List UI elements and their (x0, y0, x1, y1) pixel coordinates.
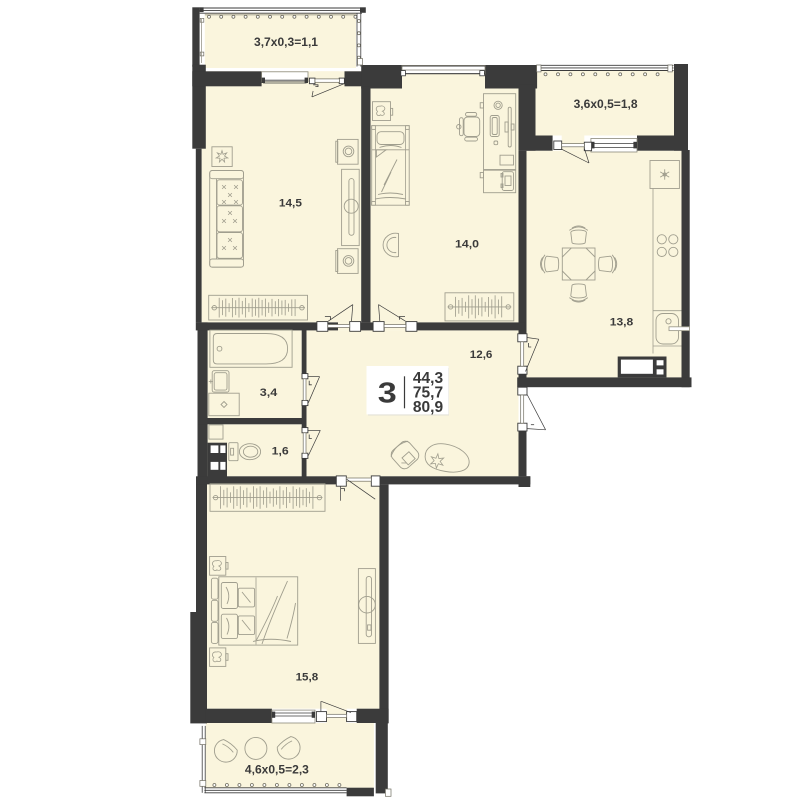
svg-text:3,7х0,3=1,1: 3,7х0,3=1,1 (254, 35, 318, 49)
svg-text:12,6: 12,6 (470, 349, 493, 361)
svg-text:14,0: 14,0 (455, 239, 479, 251)
svg-text:13,8: 13,8 (610, 316, 634, 328)
svg-text:15,8: 15,8 (296, 672, 319, 684)
svg-text:4,6х0,5=2,3: 4,6х0,5=2,3 (245, 763, 309, 777)
svg-text:14,5: 14,5 (279, 197, 302, 209)
svg-text:3: 3 (378, 377, 397, 409)
svg-text:3,6х0,5=1,8: 3,6х0,5=1,8 (574, 97, 638, 111)
svg-text:1,6: 1,6 (272, 446, 289, 458)
svg-text:80,9: 80,9 (413, 399, 444, 416)
svg-text:3,4: 3,4 (260, 387, 278, 399)
